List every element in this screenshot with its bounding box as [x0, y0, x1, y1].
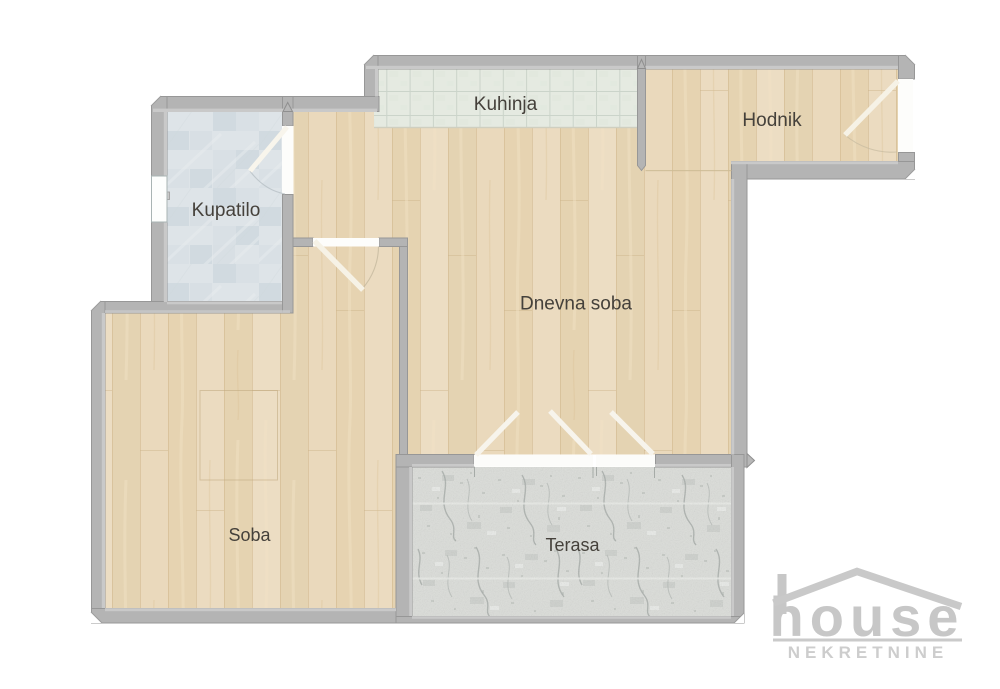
svg-text:Dnevna soba: Dnevna soba — [520, 294, 632, 315]
svg-text:Soba: Soba — [228, 525, 271, 545]
svg-text:Kuhinja: Kuhinja — [474, 94, 538, 115]
svg-text:NEKRETNINE: NEKRETNINE — [788, 643, 949, 662]
svg-text:Terasa: Terasa — [545, 535, 600, 555]
svg-text:Kupatilo: Kupatilo — [192, 200, 261, 221]
svg-text:Hodnik: Hodnik — [742, 110, 802, 131]
